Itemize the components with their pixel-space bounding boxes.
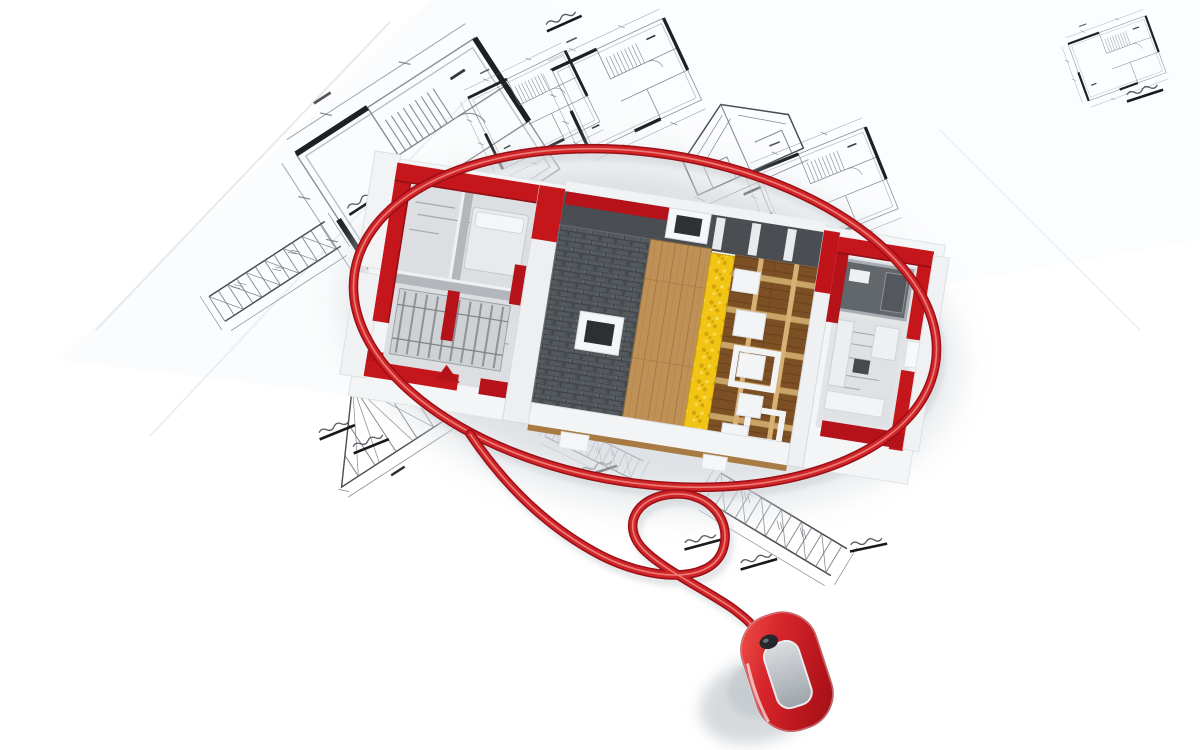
blueprint-label: [682, 532, 721, 551]
blueprint-label: [317, 417, 356, 440]
roof-skylight-glass: [584, 320, 615, 346]
insulation-panel: [736, 352, 765, 380]
construction-zone: [525, 181, 825, 483]
insulation-panel: [733, 309, 767, 339]
porch-block: [702, 454, 728, 472]
blueprint-label: [848, 535, 887, 552]
scene-3d-house-on-blueprints: [0, 0, 1200, 750]
oven: [852, 358, 870, 374]
fridge: [871, 325, 900, 360]
insulation-panel: [732, 269, 761, 295]
scene-canvas: [0, 0, 1200, 750]
computer-mouse: [688, 603, 843, 750]
insulation-panel: [736, 393, 763, 418]
